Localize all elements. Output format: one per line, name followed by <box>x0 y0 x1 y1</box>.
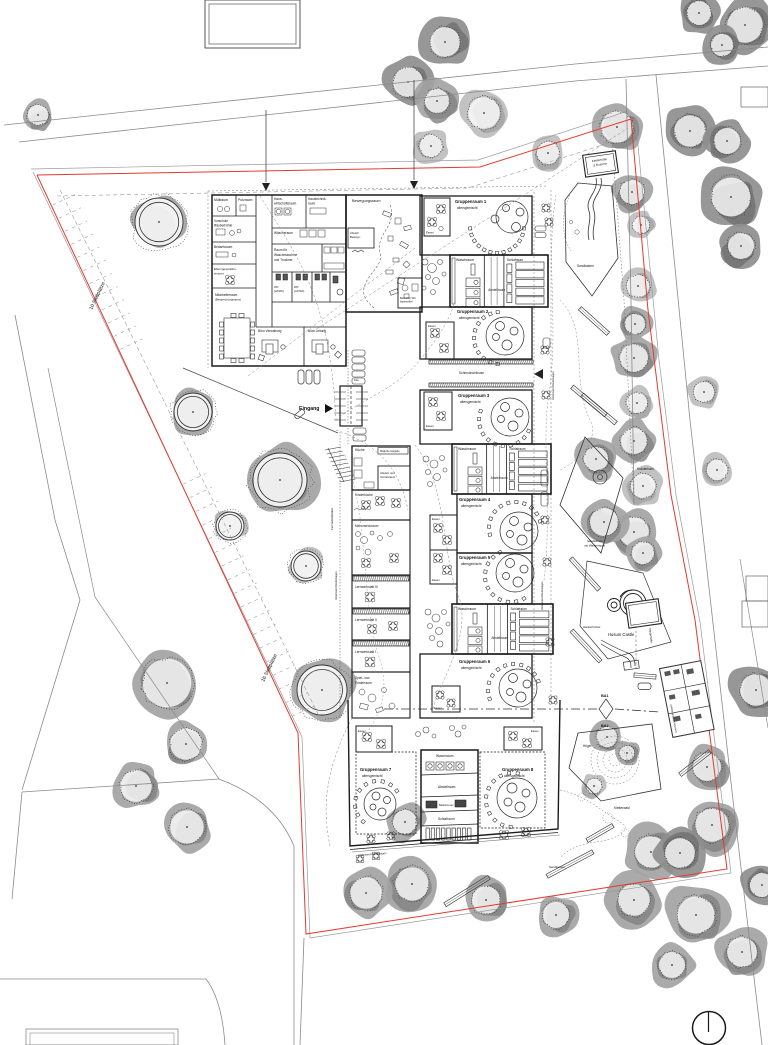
svg-text:Essen: Essen <box>426 231 434 235</box>
svg-text:Waschraum: Waschraum <box>458 607 476 611</box>
svg-text:WC: WC <box>294 285 299 289</box>
svg-text:wirtschaftsraum: wirtschaftsraum <box>274 202 297 206</box>
svg-text:Badezimmer: Badezimmer <box>439 803 454 807</box>
svg-text:Beweg.r.: Beweg.r. <box>350 235 361 239</box>
svg-text:Förderraum: Förderraum <box>355 681 372 685</box>
svg-text:altersgemischt: altersgemischt <box>457 206 478 210</box>
svg-text:Husum Castle: Husum Castle <box>608 632 635 637</box>
svg-text:(w/KiWC): (w/KiWC) <box>274 290 284 293</box>
svg-text:Vorratsraum: Vorratsraum <box>380 475 396 479</box>
svg-text:Müllraum: Müllraum <box>214 198 228 202</box>
svg-text:Essen: Essen <box>432 517 440 521</box>
svg-text:Mehrzweckraum: Mehrzweckraum <box>355 524 379 528</box>
svg-text:Büro Leitung: Büro Leitung <box>308 329 326 333</box>
svg-text:Schlafraum: Schlafraum <box>511 607 527 611</box>
svg-text:BA1: BA1 <box>601 694 609 698</box>
svg-text:altersgemischt: altersgemischt <box>460 400 481 404</box>
svg-text:Essen: Essen <box>426 424 434 428</box>
svg-text:zimmer: zimmer <box>214 272 224 276</box>
svg-text:Gruppenraum 4: Gruppenraum 4 <box>459 497 491 502</box>
svg-text:Essen: Essen <box>531 729 539 733</box>
svg-text:Sandkasten: Sandkasten <box>549 865 565 869</box>
svg-text:Essen: Essen <box>434 706 442 710</box>
svg-text:Gruppenraum 3: Gruppenraum 3 <box>458 393 490 398</box>
svg-text:Mitarbeiterraum: Mitarbeiterraum <box>215 293 238 297</box>
svg-text:Waschmaschine: Waschmaschine <box>274 253 297 257</box>
svg-text:Büro Verwaltung: Büro Verwaltung <box>258 329 282 333</box>
svg-text:Essen: Essen <box>428 324 436 328</box>
svg-text:WC: WC <box>274 285 279 289</box>
svg-text:altersgemischt: altersgemischt <box>461 666 482 670</box>
svg-text:Schlafraum: Schlafraum <box>509 447 525 451</box>
svg-text:Sandkasten: Sandkasten <box>577 264 594 268</box>
svg-text:Gruppenraum 1: Gruppenraum 1 <box>455 199 487 204</box>
svg-text:Raum für: Raum für <box>274 248 288 252</box>
svg-text:Waschraum: Waschraum <box>456 258 474 262</box>
svg-text:Kinderküche: Kinderküche <box>355 493 373 497</box>
svg-text:Spiel- und: Spiel- und <box>355 676 370 680</box>
svg-text:altersgemischt: altersgemischt <box>504 774 525 778</box>
svg-text:altersgemischt: altersgemischt <box>362 774 383 778</box>
svg-text:Schlafraum: Schlafraum <box>438 817 455 821</box>
svg-text:Haus-: Haus- <box>274 197 283 201</box>
svg-text:Unterstand Kinderwagen: Unterstand Kinderwagen <box>551 371 555 400</box>
svg-text:(Besprechungsraum): (Besprechungsraum) <box>215 298 241 302</box>
svg-text:Gruppenraum 6: Gruppenraum 6 <box>459 659 491 664</box>
svg-text:Gruppenraum 8: Gruppenraum 8 <box>502 767 534 772</box>
svg-text:mit Wasserspiel: mit Wasserspiel <box>584 544 605 548</box>
svg-text:Putzraum: Putzraum <box>238 198 253 202</box>
svg-text:Unterstand Kinderwagen: Unterstand Kinderwagen <box>334 571 338 600</box>
svg-text:Hügel: Hügel <box>583 744 592 748</box>
svg-text:Küche: Küche <box>355 448 365 452</box>
svg-text:Unterstand Kinderwagen: Unterstand Kinderwagen <box>540 581 544 610</box>
svg-text:Waschraum: Waschraum <box>436 754 454 758</box>
svg-text:Bewegungsraum: Bewegungsraum <box>352 199 381 203</box>
svg-text:Essen: Essen <box>432 578 440 582</box>
svg-text:Kletterwald: Kletterwald <box>614 806 630 810</box>
svg-text:altersgemischt: altersgemischt <box>459 316 480 320</box>
svg-text:Gruppenraum 7: Gruppenraum 7 <box>360 767 392 772</box>
svg-text:Fahrradstellplätze: Fahrradstellplätze <box>330 507 334 530</box>
svg-text:Mögliche Ausgabe: Mögliche Ausgabe <box>380 450 400 453</box>
svg-text:Wäscheraum: Wäscheraum <box>274 231 293 235</box>
svg-text:Bedarfsraum: Bedarfsraum <box>214 245 233 249</box>
svg-text:Besucher WC: Besucher WC <box>400 296 416 300</box>
svg-text:Schmutzschleuse: Schmutzschleuse <box>459 371 484 375</box>
svg-text:barrierefrei: barrierefrei <box>400 300 413 304</box>
svg-text:altersgemischt: altersgemischt <box>461 504 482 508</box>
svg-text:Kräuterhain: Kräuterhain <box>637 467 654 471</box>
svg-text:und Trockner: und Trockner <box>274 258 294 262</box>
svg-text:Gruppenraum 2: Gruppenraum 2 <box>457 309 489 314</box>
svg-text:raum: raum <box>308 202 316 206</box>
svg-text:BA2: BA2 <box>601 724 609 728</box>
svg-text:Elterngesprächs-: Elterngesprächs- <box>214 267 237 271</box>
svg-text:Gruppenraum 5: Gruppenraum 5 <box>459 555 491 560</box>
svg-text:(m/KiWC): (m/KiWC) <box>294 290 305 293</box>
svg-text:Vorschule: Vorschule <box>214 219 228 223</box>
svg-text:Lernwerkstatt III: Lernwerkstatt III <box>355 585 378 589</box>
svg-text:Abstellraum: Abstellraum <box>438 785 456 789</box>
svg-text:altersgemischt: altersgemischt <box>461 562 482 566</box>
svg-text:Abstellraum: Abstellraum <box>491 476 508 480</box>
svg-text:Hackschnitzel: Hackschnitzel <box>583 625 601 629</box>
svg-text:Waschraum: Waschraum <box>458 447 476 451</box>
svg-text:Sandkasten: Sandkasten <box>587 539 603 543</box>
svg-text:Kita: Kita <box>354 378 359 382</box>
svg-text:Abstellraum: Abstellraum <box>491 636 508 640</box>
svg-text:Schlafraum: Schlafraum <box>507 258 523 262</box>
svg-text:Räuberhöhle: Räuberhöhle <box>214 224 232 228</box>
svg-text:Haustechnik-: Haustechnik- <box>308 197 327 201</box>
svg-text:Lernwerkstatt II: Lernwerkstatt II <box>355 618 377 622</box>
svg-text:Lernwerkstatt I: Lernwerkstatt I <box>355 650 376 654</box>
